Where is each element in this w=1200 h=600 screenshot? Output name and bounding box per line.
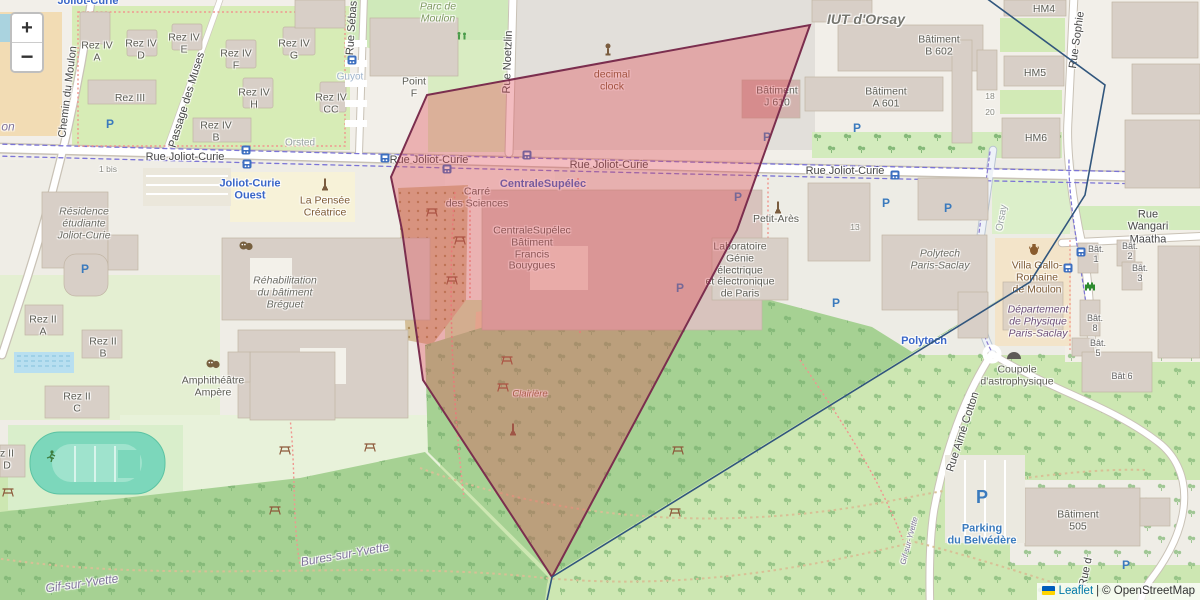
- attribution-separator: |: [1096, 585, 1099, 597]
- attribution-bar: Leaflet|© OpenStreetMap: [1037, 583, 1200, 600]
- zoom-in-button[interactable]: +: [12, 14, 42, 42]
- zoom-control: + −: [10, 12, 44, 73]
- map[interactable]: Rue Joliot-CurieRue Joliot-CurieRue Joli…: [0, 0, 1200, 600]
- osm-link[interactable]: © OpenStreetMap: [1102, 585, 1195, 597]
- leaflet-link[interactable]: Leaflet: [1059, 585, 1094, 597]
- zoom-out-button[interactable]: −: [12, 42, 42, 71]
- ukraine-flag-icon: [1042, 586, 1055, 595]
